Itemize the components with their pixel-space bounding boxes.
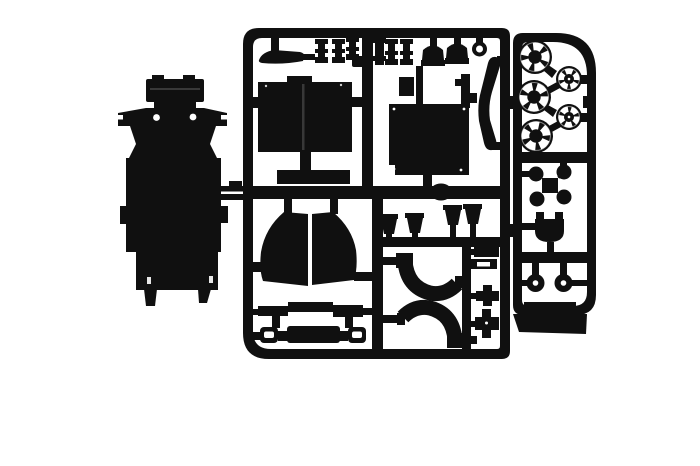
chassis-arm-fork-notch bbox=[221, 115, 229, 120]
chassis-slot-hole bbox=[209, 276, 213, 283]
sprue-photo bbox=[0, 0, 700, 466]
chassis-mount-hole bbox=[190, 114, 197, 121]
chassis-rear-leg bbox=[144, 289, 157, 306]
chassis-link-runner bbox=[221, 194, 253, 200]
wheel-small-1 bbox=[556, 66, 582, 92]
frame-bottom-ledge bbox=[524, 302, 576, 310]
chassis-side-tab bbox=[220, 206, 228, 223]
wheel-large-1 bbox=[518, 40, 552, 74]
chassis-waist bbox=[128, 126, 218, 160]
runner-middle bbox=[253, 186, 500, 199]
chassis-arm-fork-notch bbox=[116, 115, 123, 120]
chassis-mount-hole bbox=[153, 114, 160, 121]
chassis-slot-hole bbox=[147, 277, 151, 284]
panel-stub bbox=[354, 272, 372, 281]
chassis-side-tab bbox=[120, 206, 127, 224]
chassis-link-nub bbox=[229, 181, 242, 187]
runner-divider bbox=[522, 252, 587, 263]
part-base-block bbox=[513, 314, 587, 334]
sprue-gate-nub bbox=[430, 184, 452, 201]
runner-lower-vertical bbox=[372, 199, 383, 349]
chassis-front-arms bbox=[118, 108, 227, 126]
arch-stub bbox=[383, 315, 399, 323]
chassis-top-box bbox=[146, 79, 204, 102]
runner-stub bbox=[583, 96, 592, 108]
chassis-box-seam bbox=[150, 88, 200, 90]
chassis-main-body bbox=[126, 158, 221, 252]
photo-canvas bbox=[0, 0, 700, 466]
runner-sub-horizontal bbox=[383, 237, 500, 247]
panel-stub bbox=[253, 262, 263, 272]
